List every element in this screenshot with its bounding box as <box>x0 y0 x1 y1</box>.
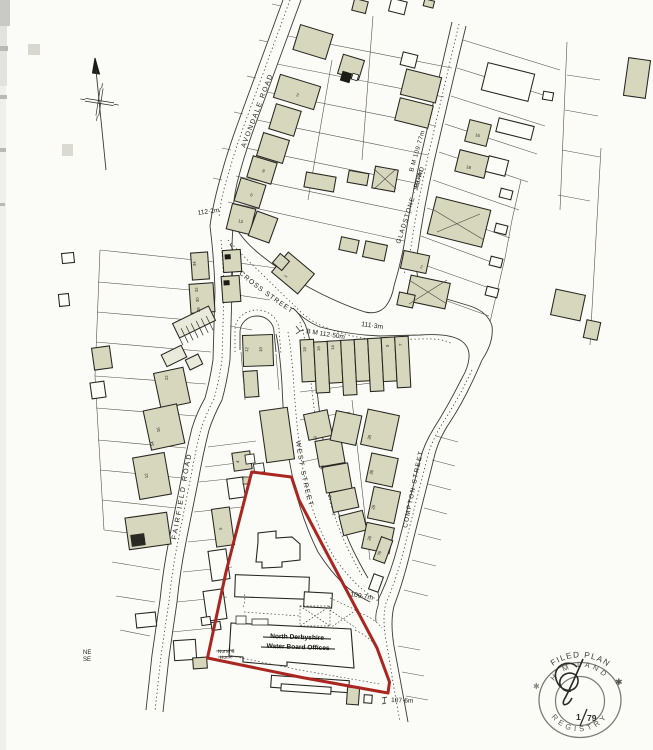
svg-text:14: 14 <box>330 345 335 351</box>
svg-text:✱: ✱ <box>533 682 540 691</box>
svg-text:16: 16 <box>316 346 321 352</box>
svg-text:SE: SE <box>83 657 91 663</box>
svg-text:107·6m: 107·6m <box>391 697 414 705</box>
svg-text:18: 18 <box>302 347 307 353</box>
svg-text:Home: Home <box>220 654 234 661</box>
svg-text:1: 1 <box>576 712 581 722</box>
svg-text:✱: ✱ <box>615 677 623 687</box>
svg-text:Nursing: Nursing <box>218 648 235 655</box>
svg-text:79: 79 <box>587 713 597 723</box>
svg-text:NE: NE <box>83 650 91 656</box>
